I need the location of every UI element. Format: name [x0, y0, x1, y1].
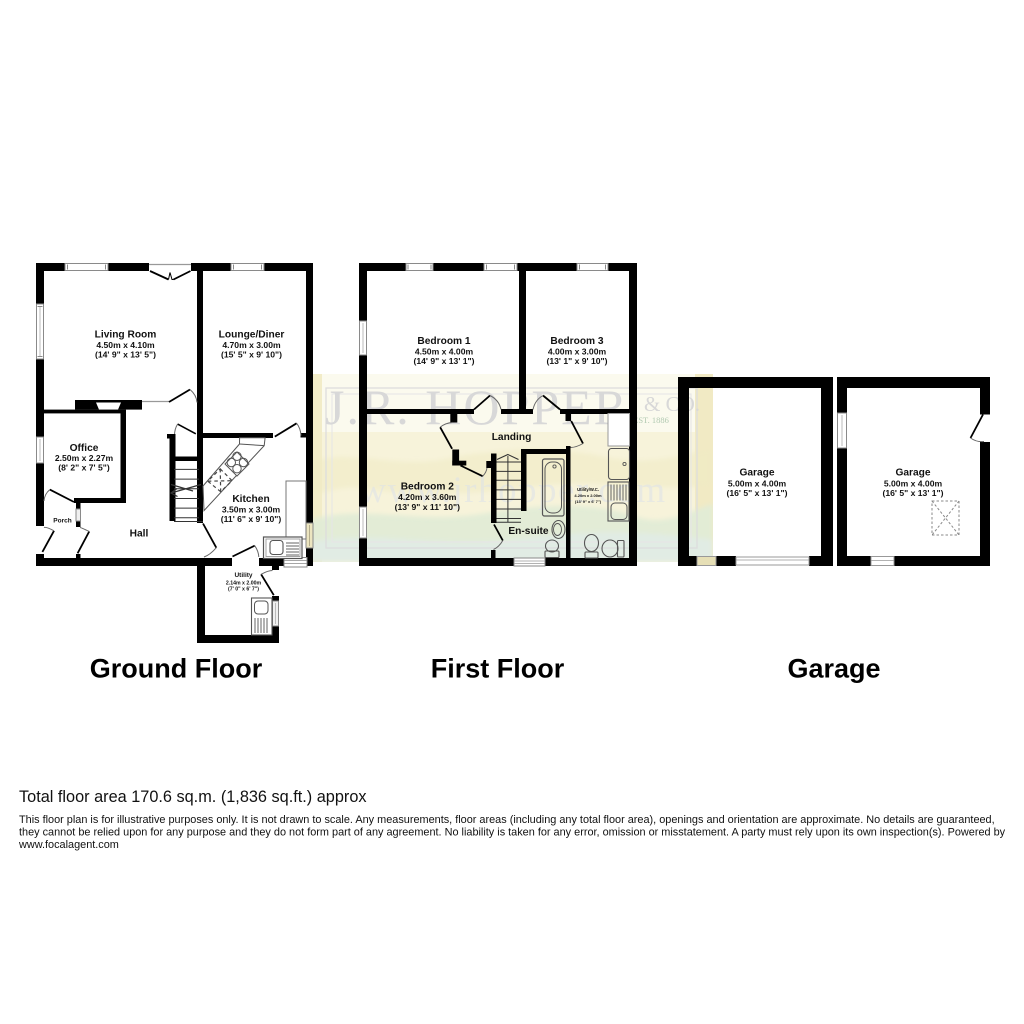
svg-text:4.70m x 3.00m: 4.70m x 3.00m	[222, 340, 281, 350]
svg-text:www.focalagent.com: www.focalagent.com	[18, 839, 119, 851]
svg-text:(14' 9" x 13' 5"): (14' 9" x 13' 5")	[95, 350, 156, 360]
svg-text:Bedroom 2: Bedroom 2	[401, 482, 455, 493]
svg-text:(7' 0" x 6' 7"): (7' 0" x 6' 7")	[228, 587, 259, 593]
svg-text:2.50m x 2.27m: 2.50m x 2.27m	[55, 453, 114, 463]
svg-text:they cannot be relied upon for: they cannot be relied upon for any purpo…	[19, 827, 1006, 839]
svg-text:Bedroom 3: Bedroom 3	[550, 336, 604, 347]
svg-text:This floor plan is for illustr: This floor plan is for illustrative purp…	[19, 814, 995, 826]
svg-text:(8' 2" x 7' 5"): (8' 2" x 7' 5")	[58, 463, 110, 473]
svg-text:Garage: Garage	[787, 654, 880, 684]
svg-text:Total floor area 170.6 sq.m. (: Total floor area 170.6 sq.m. (1,836 sq.f…	[19, 788, 367, 806]
svg-text:Living Room: Living Room	[95, 330, 157, 341]
svg-text:(15' 5" x 9' 10"): (15' 5" x 9' 10")	[221, 350, 282, 360]
svg-text:3.50m x 3.00m: 3.50m x 3.00m	[222, 505, 281, 515]
svg-text:(14' 9" x 13' 1"): (14' 9" x 13' 1")	[414, 356, 475, 366]
svg-text:& CO.: & CO.	[644, 392, 700, 416]
svg-text:4.50m x 4.10m: 4.50m x 4.10m	[96, 340, 155, 350]
svg-text:Bedroom 1: Bedroom 1	[417, 336, 471, 347]
svg-text:4.20m x 3.60m: 4.20m x 3.60m	[398, 492, 457, 502]
svg-text:(16' 5" x 13' 1"): (16' 5" x 13' 1")	[727, 488, 788, 498]
svg-text:4.00m x 3.00m: 4.00m x 3.00m	[548, 347, 607, 357]
svg-text:5.00m x 4.00m: 5.00m x 4.00m	[728, 479, 787, 489]
svg-text:First Floor: First Floor	[431, 654, 565, 684]
svg-text:4.50m x 4.00m: 4.50m x 4.00m	[415, 347, 474, 357]
svg-text:EST. 1886: EST. 1886	[633, 415, 669, 425]
svg-text:(11' 6" x 9' 10"): (11' 6" x 9' 10")	[221, 514, 282, 524]
svg-text:Utility: Utility	[234, 572, 252, 579]
svg-text:(13' 9" x 11' 10"): (13' 9" x 11' 10")	[395, 502, 460, 512]
svg-text:Utility/W.C.: Utility/W.C.	[577, 487, 599, 492]
svg-text:(13' 9" x 6' 7"): (13' 9" x 6' 7")	[575, 499, 602, 504]
svg-text:Porch: Porch	[53, 518, 71, 525]
svg-text:Hall: Hall	[130, 529, 149, 540]
svg-text:Garage: Garage	[739, 468, 774, 479]
svg-text:(16' 5" x 13' 1"): (16' 5" x 13' 1")	[883, 488, 944, 498]
svg-text:Lounge/Diner: Lounge/Diner	[219, 330, 285, 341]
svg-text:(13' 1" x 9' 10"): (13' 1" x 9' 10")	[547, 356, 608, 366]
svg-text:En-suite: En-suite	[508, 526, 549, 537]
svg-text:Kitchen: Kitchen	[232, 494, 269, 505]
svg-text:Garage: Garage	[895, 468, 930, 479]
svg-text:4.20m x 2.00m: 4.20m x 2.00m	[574, 493, 602, 498]
svg-text:Ground Floor: Ground Floor	[90, 654, 263, 684]
svg-text:5.00m x 4.00m: 5.00m x 4.00m	[884, 479, 943, 489]
svg-text:Landing: Landing	[492, 432, 532, 443]
